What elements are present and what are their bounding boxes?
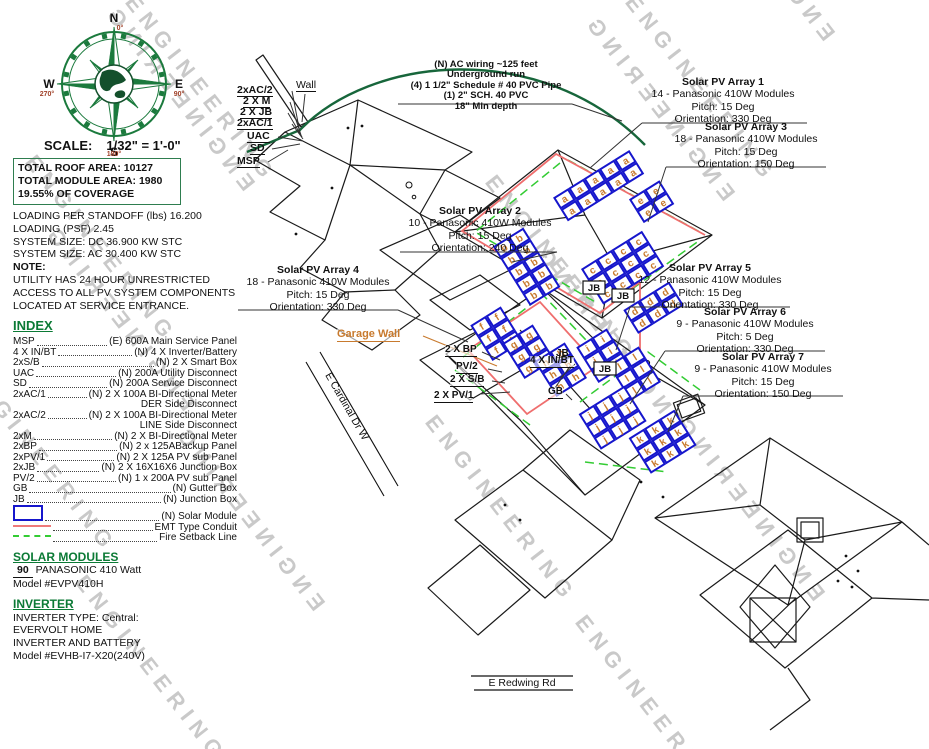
note-line: UTILITY HAS 24 HOUR UNRESTRICTED: [13, 274, 237, 287]
label-4xinbt: 4 X IN/BT: [530, 356, 574, 368]
label-2xsb: 2 X S/B: [450, 375, 484, 387]
site-plan-sheet: ENGINEERINGENGINEERINGENGINEERINGENGINEE…: [0, 0, 929, 749]
loading-line: SYSTEM SIZE: AC 30.400 KW STC: [13, 248, 237, 261]
array-6-label: Solar PV Array 69 - Panasonic 410W Modul…: [659, 306, 831, 356]
notes-and-index-column: LOADING PER STANDOFF (lbs) 16.200 LOADIN…: [13, 210, 237, 663]
index-title: INDEX: [13, 318, 237, 334]
array-5-label: Solar PV Array 512 - Panasonic 410W Modu…: [624, 262, 796, 312]
array-1-label: Solar PV Array 114 - Panasonic 410W Modu…: [637, 76, 809, 126]
solar-modules-title: SOLAR MODULES: [13, 550, 237, 565]
index-item: Fire Setback Line: [13, 533, 237, 544]
note-line: LOCATED AT SERVICE ENTRANCE.: [13, 300, 237, 313]
inverter-line: EVERVOLT HOME: [13, 624, 237, 637]
inverter-line: INVERTER TYPE: Central:: [13, 612, 237, 625]
inverter-line: Model #EVHB-I7-X20(240V): [13, 650, 237, 663]
fire-setback-symbol: [13, 535, 51, 537]
emt-conduit-symbol: [13, 525, 51, 527]
compass-e-deg: 90°: [174, 90, 185, 98]
label-sd: SD: [250, 143, 265, 155]
compass-n: N: [110, 11, 119, 25]
compass-e: E: [175, 77, 183, 91]
module-name: PANASONIC 410 Watt: [36, 564, 142, 576]
ac-wiring-note: (N) AC wiring ~125 feet Underground run …: [378, 60, 594, 112]
loading-line: LOADING (PSF) 2.45: [13, 223, 237, 236]
note-line: ACCESS TO ALL PV SYSTEM COMPONENTS: [13, 287, 237, 300]
label-2xac1: 2xAC/1: [237, 118, 273, 130]
solar-modules-count-line: 90 PANASONIC 410 Watt: [13, 564, 237, 578]
inverter-title: INVERTER: [13, 597, 237, 612]
scale-note: SCALE:1/32" = 1'-0": [44, 138, 181, 153]
solar-module-symbol: [13, 505, 43, 521]
roof-area-box: TOTAL ROOF AREA: 10127 TOTAL MODULE AREA…: [13, 158, 181, 205]
array-2-label: Solar PV Array 210 - Panasonic 410W Modu…: [394, 205, 566, 255]
compass-n-deg: 0°: [117, 24, 124, 32]
array-4-label: Solar PV Array 418 - Panasonic 410W Modu…: [232, 264, 404, 314]
note-title: NOTE:: [13, 261, 237, 274]
loading-line: SYSTEM SIZE: DC 36.900 KW STC: [13, 236, 237, 249]
label-2xpv1: 2 X PV/1: [434, 391, 473, 403]
compass-w: W: [43, 77, 55, 91]
module-count: 90: [13, 564, 33, 578]
label-pv2: PV/2: [456, 362, 478, 374]
label-gb: GB: [548, 387, 563, 399]
index-item: (N) Solar Module: [13, 505, 237, 523]
array-3-label: Solar PV Array 318 - Panasonic 410W Modu…: [660, 121, 832, 171]
garage-wall-label: Garage Wall: [337, 329, 400, 342]
inverter-line: INVERTER AND BATTERY: [13, 637, 237, 650]
label-wall: Wall: [296, 80, 316, 92]
array-7-label: Solar PV Array 79 - Panasonic 410W Modul…: [677, 351, 849, 401]
label-2xbp: 2 X BP: [445, 345, 477, 357]
index-legend: MSP(E) 600A Main Service Panel4 X IN/BT(…: [13, 337, 237, 544]
module-model: Model #EVPV410H: [13, 578, 237, 591]
loading-line: LOADING PER STANDOFF (lbs) 16.200: [13, 210, 237, 223]
compass-w-deg: 270°: [40, 90, 55, 98]
label-msp: MSP: [237, 156, 260, 168]
index-item: JB(N) Junction Box: [13, 495, 237, 506]
